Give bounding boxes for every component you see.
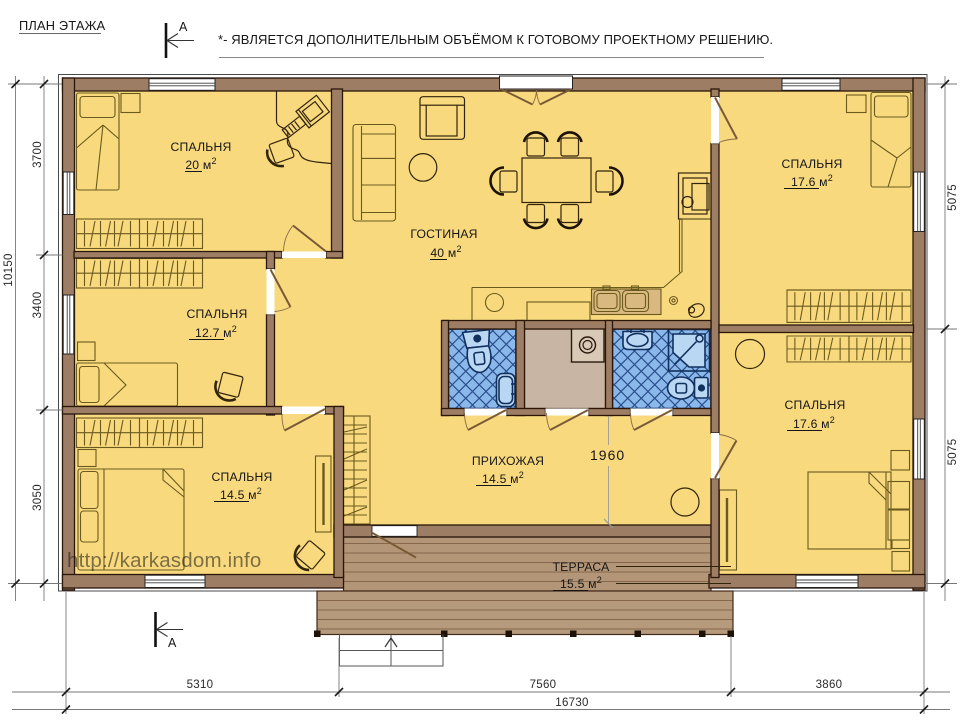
svg-text:СПАЛЬНЯ: СПАЛЬНЯ bbox=[212, 470, 273, 484]
svg-text:А: А bbox=[179, 20, 188, 34]
svg-text:А: А bbox=[168, 636, 177, 650]
svg-text:15.5 м2: 15.5 м2 bbox=[560, 575, 602, 591]
svg-text:16730: 16730 bbox=[555, 697, 588, 709]
svg-text:3700: 3700 bbox=[32, 141, 44, 168]
svg-text:http://karkasdom.info: http://karkasdom.info bbox=[67, 549, 262, 572]
svg-text:ГОСТИНАЯ: ГОСТИНАЯ bbox=[410, 227, 477, 241]
svg-text:3050: 3050 bbox=[32, 484, 44, 511]
svg-text:1960: 1960 bbox=[590, 447, 625, 463]
svg-text:*- ЯВЛЯЕТСЯ ДОПОЛНИТЕЛЬНЫМ ОБЪ: *- ЯВЛЯЕТСЯ ДОПОЛНИТЕЛЬНЫМ ОБЪЁМОМ К ГОТ… bbox=[218, 32, 773, 47]
svg-text:СПАЛЬНЯ: СПАЛЬНЯ bbox=[785, 398, 846, 412]
svg-text:10150: 10150 bbox=[3, 253, 15, 286]
svg-text:14.5 м2: 14.5 м2 bbox=[482, 470, 524, 486]
svg-text:17.6 м2: 17.6 м2 bbox=[791, 173, 833, 189]
svg-text:3400: 3400 bbox=[32, 292, 44, 319]
svg-text:СПАЛЬНЯ: СПАЛЬНЯ bbox=[782, 157, 843, 171]
svg-text:5075: 5075 bbox=[947, 439, 959, 466]
svg-text:12.7 м2: 12.7 м2 bbox=[195, 324, 237, 340]
svg-text:17.6 м2: 17.6 м2 bbox=[793, 415, 835, 431]
svg-text:ПРИХОЖАЯ: ПРИХОЖАЯ bbox=[472, 454, 544, 468]
svg-text:3860: 3860 bbox=[816, 679, 843, 691]
svg-text:5075: 5075 bbox=[947, 184, 959, 211]
svg-text:ПЛАН ЭТАЖА: ПЛАН ЭТАЖА bbox=[19, 18, 106, 33]
svg-text:СПАЛЬНЯ: СПАЛЬНЯ bbox=[171, 140, 232, 154]
svg-text:5310: 5310 bbox=[187, 679, 214, 691]
svg-text:7560: 7560 bbox=[530, 679, 557, 691]
svg-text:ТЕРРАСА: ТЕРРАСА bbox=[553, 560, 611, 574]
svg-text:СПАЛЬНЯ: СПАЛЬНЯ bbox=[187, 307, 248, 321]
svg-text:14.5 м2: 14.5 м2 bbox=[220, 486, 262, 502]
